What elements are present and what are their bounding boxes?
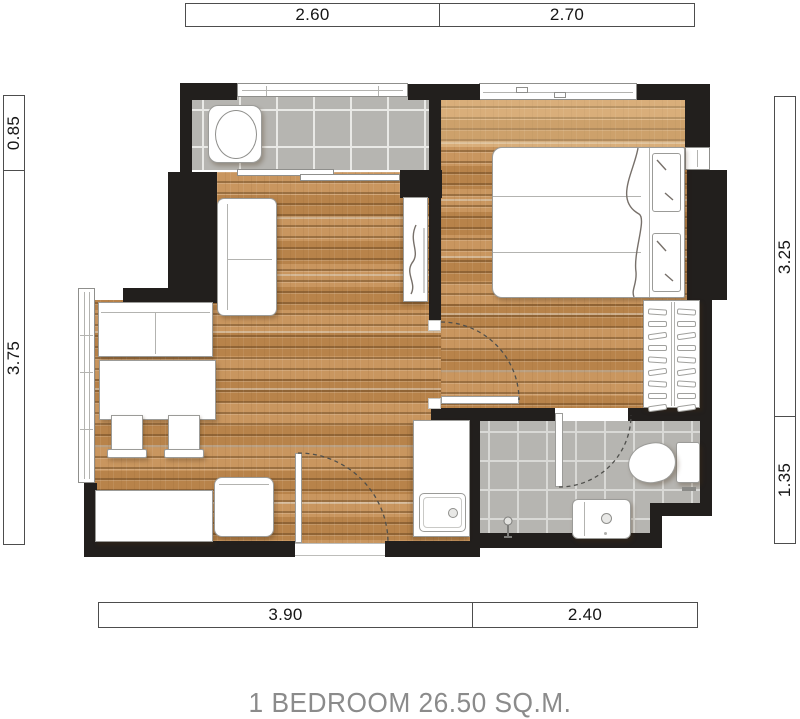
wardrobe <box>643 300 700 408</box>
tv-console <box>403 197 428 302</box>
bedroom-doorway-sill-top <box>428 320 441 331</box>
wall-left-stub <box>123 288 169 302</box>
dimension-right-1: 3.25 <box>775 239 795 273</box>
dimension-left-2: 3.75 <box>4 340 24 374</box>
wall-living-bedroom-divider <box>429 84 441 323</box>
wall-kitchen-right <box>470 421 480 541</box>
bathroom-sink <box>572 499 631 539</box>
bedroom-doorway-sill-bottom <box>428 398 441 409</box>
plan-title: 1 BEDROOM 26.50 SQ.M. <box>25 687 796 719</box>
dimension-bottom-1: 3.90 <box>268 605 302 625</box>
wall-bath-step-horizontal <box>650 503 712 516</box>
dimension-top-1: 2.60 <box>186 4 439 26</box>
bedroom-top-window <box>479 83 637 100</box>
kitchen-faucet-icon <box>448 508 458 518</box>
dimension-bar-right: 3.25 1.35 <box>774 96 796 544</box>
pillow-2 <box>652 233 681 292</box>
living-left-window <box>78 288 95 483</box>
low-cabinet <box>95 490 213 542</box>
dining-chair-2-back <box>164 449 204 458</box>
dimension-bar-left: 0.85 3.75 <box>3 95 25 545</box>
wall-balcony-left <box>180 97 192 173</box>
wall-right-protrusion <box>687 170 727 300</box>
refrigerator <box>214 477 274 537</box>
dimension-right-2: 1.35 <box>775 463 795 497</box>
sideboard-cabinet <box>98 302 213 357</box>
washing-machine <box>208 105 262 163</box>
wall-right-top <box>685 90 710 147</box>
wardrobe-hangers-left <box>645 301 670 411</box>
dining-chair-2 <box>168 415 200 453</box>
kitchen-sink <box>419 493 466 532</box>
entry-door-leaf <box>295 453 302 543</box>
bedroom-floor-light-band <box>441 97 700 147</box>
dining-chair-1-back <box>107 449 147 458</box>
wall-bottom-left <box>84 541 295 557</box>
balcony-sliding-door-panel-2 <box>300 174 400 181</box>
dining-table <box>99 360 216 420</box>
toilet-flush-button <box>682 487 696 491</box>
entry-door-sill <box>295 543 385 556</box>
wall-right-lower <box>700 300 712 516</box>
bathroom-door-leaf <box>555 413 563 487</box>
wall-bathroom-bottom <box>480 533 662 548</box>
sofa <box>217 198 277 316</box>
dimension-bar-bottom: 3.90 2.40 <box>98 602 698 628</box>
bedroom-right-window <box>685 147 710 170</box>
wall-divider-chunk <box>400 170 442 198</box>
wardrobe-hangers-right <box>674 301 699 411</box>
balcony-railing-window <box>237 83 408 97</box>
dining-chair-1 <box>111 415 143 453</box>
dimension-bar-top: 2.60 2.70 <box>185 3 695 27</box>
wall-top-middle <box>408 84 480 100</box>
kitchen-counter <box>413 420 470 537</box>
bedroom-door-leaf <box>441 396 519 404</box>
bathroom-door-opening <box>555 409 628 421</box>
dimension-bottom-2: 2.40 <box>568 605 602 625</box>
toilet-tank <box>676 442 700 483</box>
dimension-left-1: 0.85 <box>4 116 24 150</box>
floor-plan-page: 2.60 2.70 3.90 2.40 0.85 3.75 3.25 1.35 <box>0 0 800 719</box>
wall-bottom-middle <box>385 541 480 557</box>
washing-machine-drum <box>215 110 257 159</box>
pillow-1 <box>652 153 681 212</box>
bathroom-faucet-icon <box>601 513 612 524</box>
wall-left-column <box>168 172 217 303</box>
dimension-top-2: 2.70 <box>439 4 694 26</box>
